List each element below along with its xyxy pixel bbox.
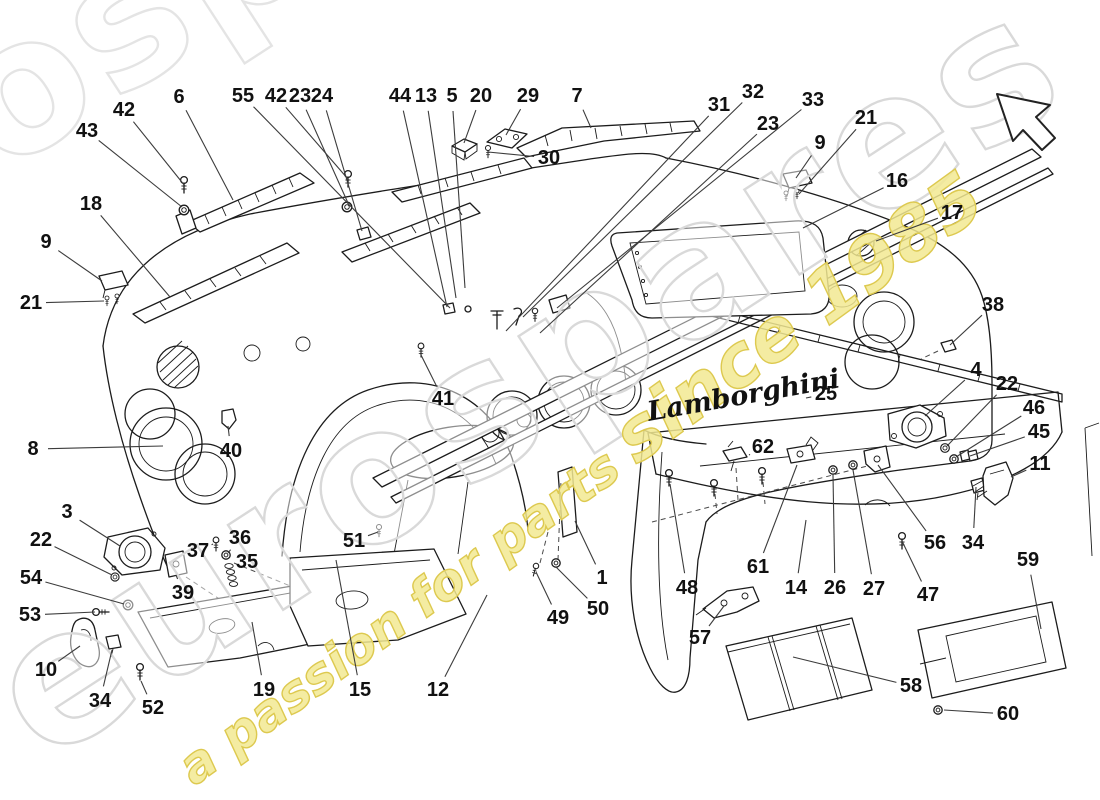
leader-line-1 <box>575 521 596 564</box>
part-label-14[interactable]: 14 <box>785 577 808 599</box>
leader-line-50 <box>556 567 587 598</box>
part-label-46[interactable]: 46 <box>1023 397 1045 419</box>
leader-line-44 <box>403 111 447 307</box>
part-label-3[interactable]: 3 <box>61 501 72 523</box>
part-label-53[interactable]: 53 <box>19 604 41 626</box>
leader-line-47 <box>902 541 922 582</box>
leader-line-35 <box>233 570 234 571</box>
bracket-62 <box>723 441 747 471</box>
leader-line-14 <box>798 520 806 573</box>
leader-line-62 <box>749 454 750 455</box>
part-label-62[interactable]: 62 <box>752 436 774 458</box>
screw-glyph <box>759 468 766 484</box>
clip-24 <box>357 227 371 240</box>
parts-catalog-page: eurospares eurospares a passion for part… <box>0 0 1100 800</box>
part-label-21t[interactable]: 21 <box>855 107 877 129</box>
part-label-55[interactable]: 55 <box>232 85 254 107</box>
leader-line-24 <box>326 110 362 231</box>
part-label-49[interactable]: 49 <box>547 607 569 629</box>
part-label-5[interactable]: 5 <box>446 85 457 107</box>
leader-line-43 <box>99 140 182 207</box>
nut-glyph-27 <box>849 461 857 469</box>
leader-line-49 <box>536 572 552 605</box>
leader-line-5 <box>453 111 465 288</box>
bracket-56 <box>864 446 890 472</box>
screw-glyph-21l <box>105 296 109 306</box>
part-label-9t[interactable]: 9 <box>814 132 825 154</box>
part-label-42a[interactable]: 42 <box>113 99 135 121</box>
part-label-11[interactable]: 11 <box>1029 453 1050 475</box>
leader-line-9l <box>58 251 102 281</box>
part-label-43[interactable]: 43 <box>76 120 98 142</box>
nut-glyph-60 <box>934 706 942 714</box>
part-label-38[interactable]: 38 <box>982 294 1004 316</box>
leader-line-26 <box>833 475 835 573</box>
part-label-36[interactable]: 36 <box>229 527 251 549</box>
parts-diagram: eurospares eurospares a passion for part… <box>0 0 1100 800</box>
part-label-18[interactable]: 18 <box>80 193 102 215</box>
part-label-27[interactable]: 27 <box>863 578 885 600</box>
part-label-34l[interactable]: 34 <box>89 690 112 712</box>
part-label-31[interactable]: 31 <box>708 94 730 116</box>
part-label-40[interactable]: 40 <box>220 440 242 462</box>
part-label-39[interactable]: 39 <box>172 582 194 604</box>
part-label-8[interactable]: 8 <box>27 438 38 460</box>
part-label-17[interactable]: 17 <box>941 202 963 224</box>
part-label-20[interactable]: 20 <box>470 85 492 107</box>
leader-line-45 <box>970 437 1025 456</box>
bushing-45 <box>960 450 978 461</box>
part-label-24[interactable]: 24 <box>311 85 334 107</box>
part-label-15[interactable]: 15 <box>349 679 371 701</box>
part-label-59[interactable]: 59 <box>1017 549 1039 571</box>
part-label-16[interactable]: 16 <box>886 170 908 192</box>
part-label-41[interactable]: 41 <box>432 388 454 410</box>
part-label-52[interactable]: 52 <box>142 697 164 719</box>
part-label-9l[interactable]: 9 <box>40 231 51 253</box>
part-label-48[interactable]: 48 <box>676 577 698 599</box>
part-label-56[interactable]: 56 <box>924 532 946 554</box>
leader-line-61 <box>763 465 797 553</box>
part-label-45[interactable]: 45 <box>1028 421 1050 443</box>
part-label-30[interactable]: 30 <box>538 147 560 169</box>
bracket-9-left <box>99 271 128 298</box>
part-label-34r[interactable]: 34 <box>962 532 985 554</box>
part-label-22l[interactable]: 22 <box>30 529 52 551</box>
part-label-23a[interactable]: 23 <box>289 85 311 107</box>
hatched-vent-left <box>157 341 199 388</box>
nut-glyph-26 <box>829 466 837 474</box>
leader-line-42b <box>286 107 348 179</box>
part-label-47[interactable]: 47 <box>917 584 939 606</box>
leader-line-42a <box>133 122 185 186</box>
leader-line-21l <box>46 301 104 303</box>
part-label-60[interactable]: 60 <box>997 703 1019 725</box>
part-label-35[interactable]: 35 <box>236 551 258 573</box>
leader-line-13 <box>428 111 456 298</box>
screw-glyph-30 <box>485 145 490 157</box>
leader-line-8 <box>48 446 163 449</box>
part-label-37[interactable]: 37 <box>187 540 209 562</box>
part-label-61[interactable]: 61 <box>747 556 769 578</box>
part-label-4[interactable]: 4 <box>970 359 982 381</box>
screw-glyph-49 <box>531 563 540 577</box>
part-label-10[interactable]: 10 <box>35 659 57 681</box>
bracket-part-29 <box>487 129 527 148</box>
leader-line-48 <box>670 484 685 573</box>
leader-line-23a <box>306 110 348 203</box>
part-label-13[interactable]: 13 <box>415 85 437 107</box>
part-label-44[interactable]: 44 <box>389 85 412 107</box>
leader-line-20 <box>464 110 476 143</box>
glovebox-frame-59 <box>918 602 1066 698</box>
part-label-23b[interactable]: 23 <box>757 113 779 135</box>
washer-glyph-23a <box>342 202 352 212</box>
leader-line-38 <box>950 315 982 345</box>
part-label-42b[interactable]: 42 <box>265 85 287 107</box>
leader-line-4 <box>925 380 965 416</box>
part-label-22r[interactable]: 22 <box>996 373 1018 395</box>
part-label-51[interactable]: 51 <box>343 530 365 552</box>
part-label-57[interactable]: 57 <box>689 627 711 649</box>
part-label-7[interactable]: 7 <box>571 85 582 107</box>
part-label-33[interactable]: 33 <box>802 89 824 111</box>
part-label-26[interactable]: 26 <box>824 577 846 599</box>
leader-line-56 <box>878 465 926 531</box>
nut-glyph-50 <box>552 559 560 567</box>
washer-glyph-43 <box>179 205 189 215</box>
leader-line-60 <box>944 710 993 713</box>
part-label-1[interactable]: 1 <box>596 567 607 589</box>
part-label-6[interactable]: 6 <box>173 86 184 108</box>
part-label-19[interactable]: 19 <box>253 679 275 701</box>
bracket-61 <box>787 437 818 463</box>
part-label-12[interactable]: 12 <box>427 679 449 701</box>
leader-line-11 <box>1011 470 1026 477</box>
trim-strip-6 <box>176 173 314 234</box>
part-label-58[interactable]: 58 <box>900 675 922 697</box>
bracket-57 <box>696 587 759 618</box>
part-label-54[interactable]: 54 <box>20 567 43 589</box>
part-label-21l[interactable]: 21 <box>20 292 42 314</box>
part-label-32[interactable]: 32 <box>742 81 764 103</box>
glovebox-lid-58 <box>726 618 872 720</box>
part-label-25[interactable]: 25 <box>815 383 837 405</box>
leader-line-7 <box>583 110 591 128</box>
leader-line-37 <box>212 544 213 545</box>
leader-line-27 <box>853 470 871 574</box>
part-label-50[interactable]: 50 <box>587 598 609 620</box>
part-label-29[interactable]: 29 <box>517 85 539 107</box>
clip-40 <box>222 409 236 429</box>
trim-strip-5 <box>392 158 532 202</box>
leader-line-6 <box>186 110 233 200</box>
